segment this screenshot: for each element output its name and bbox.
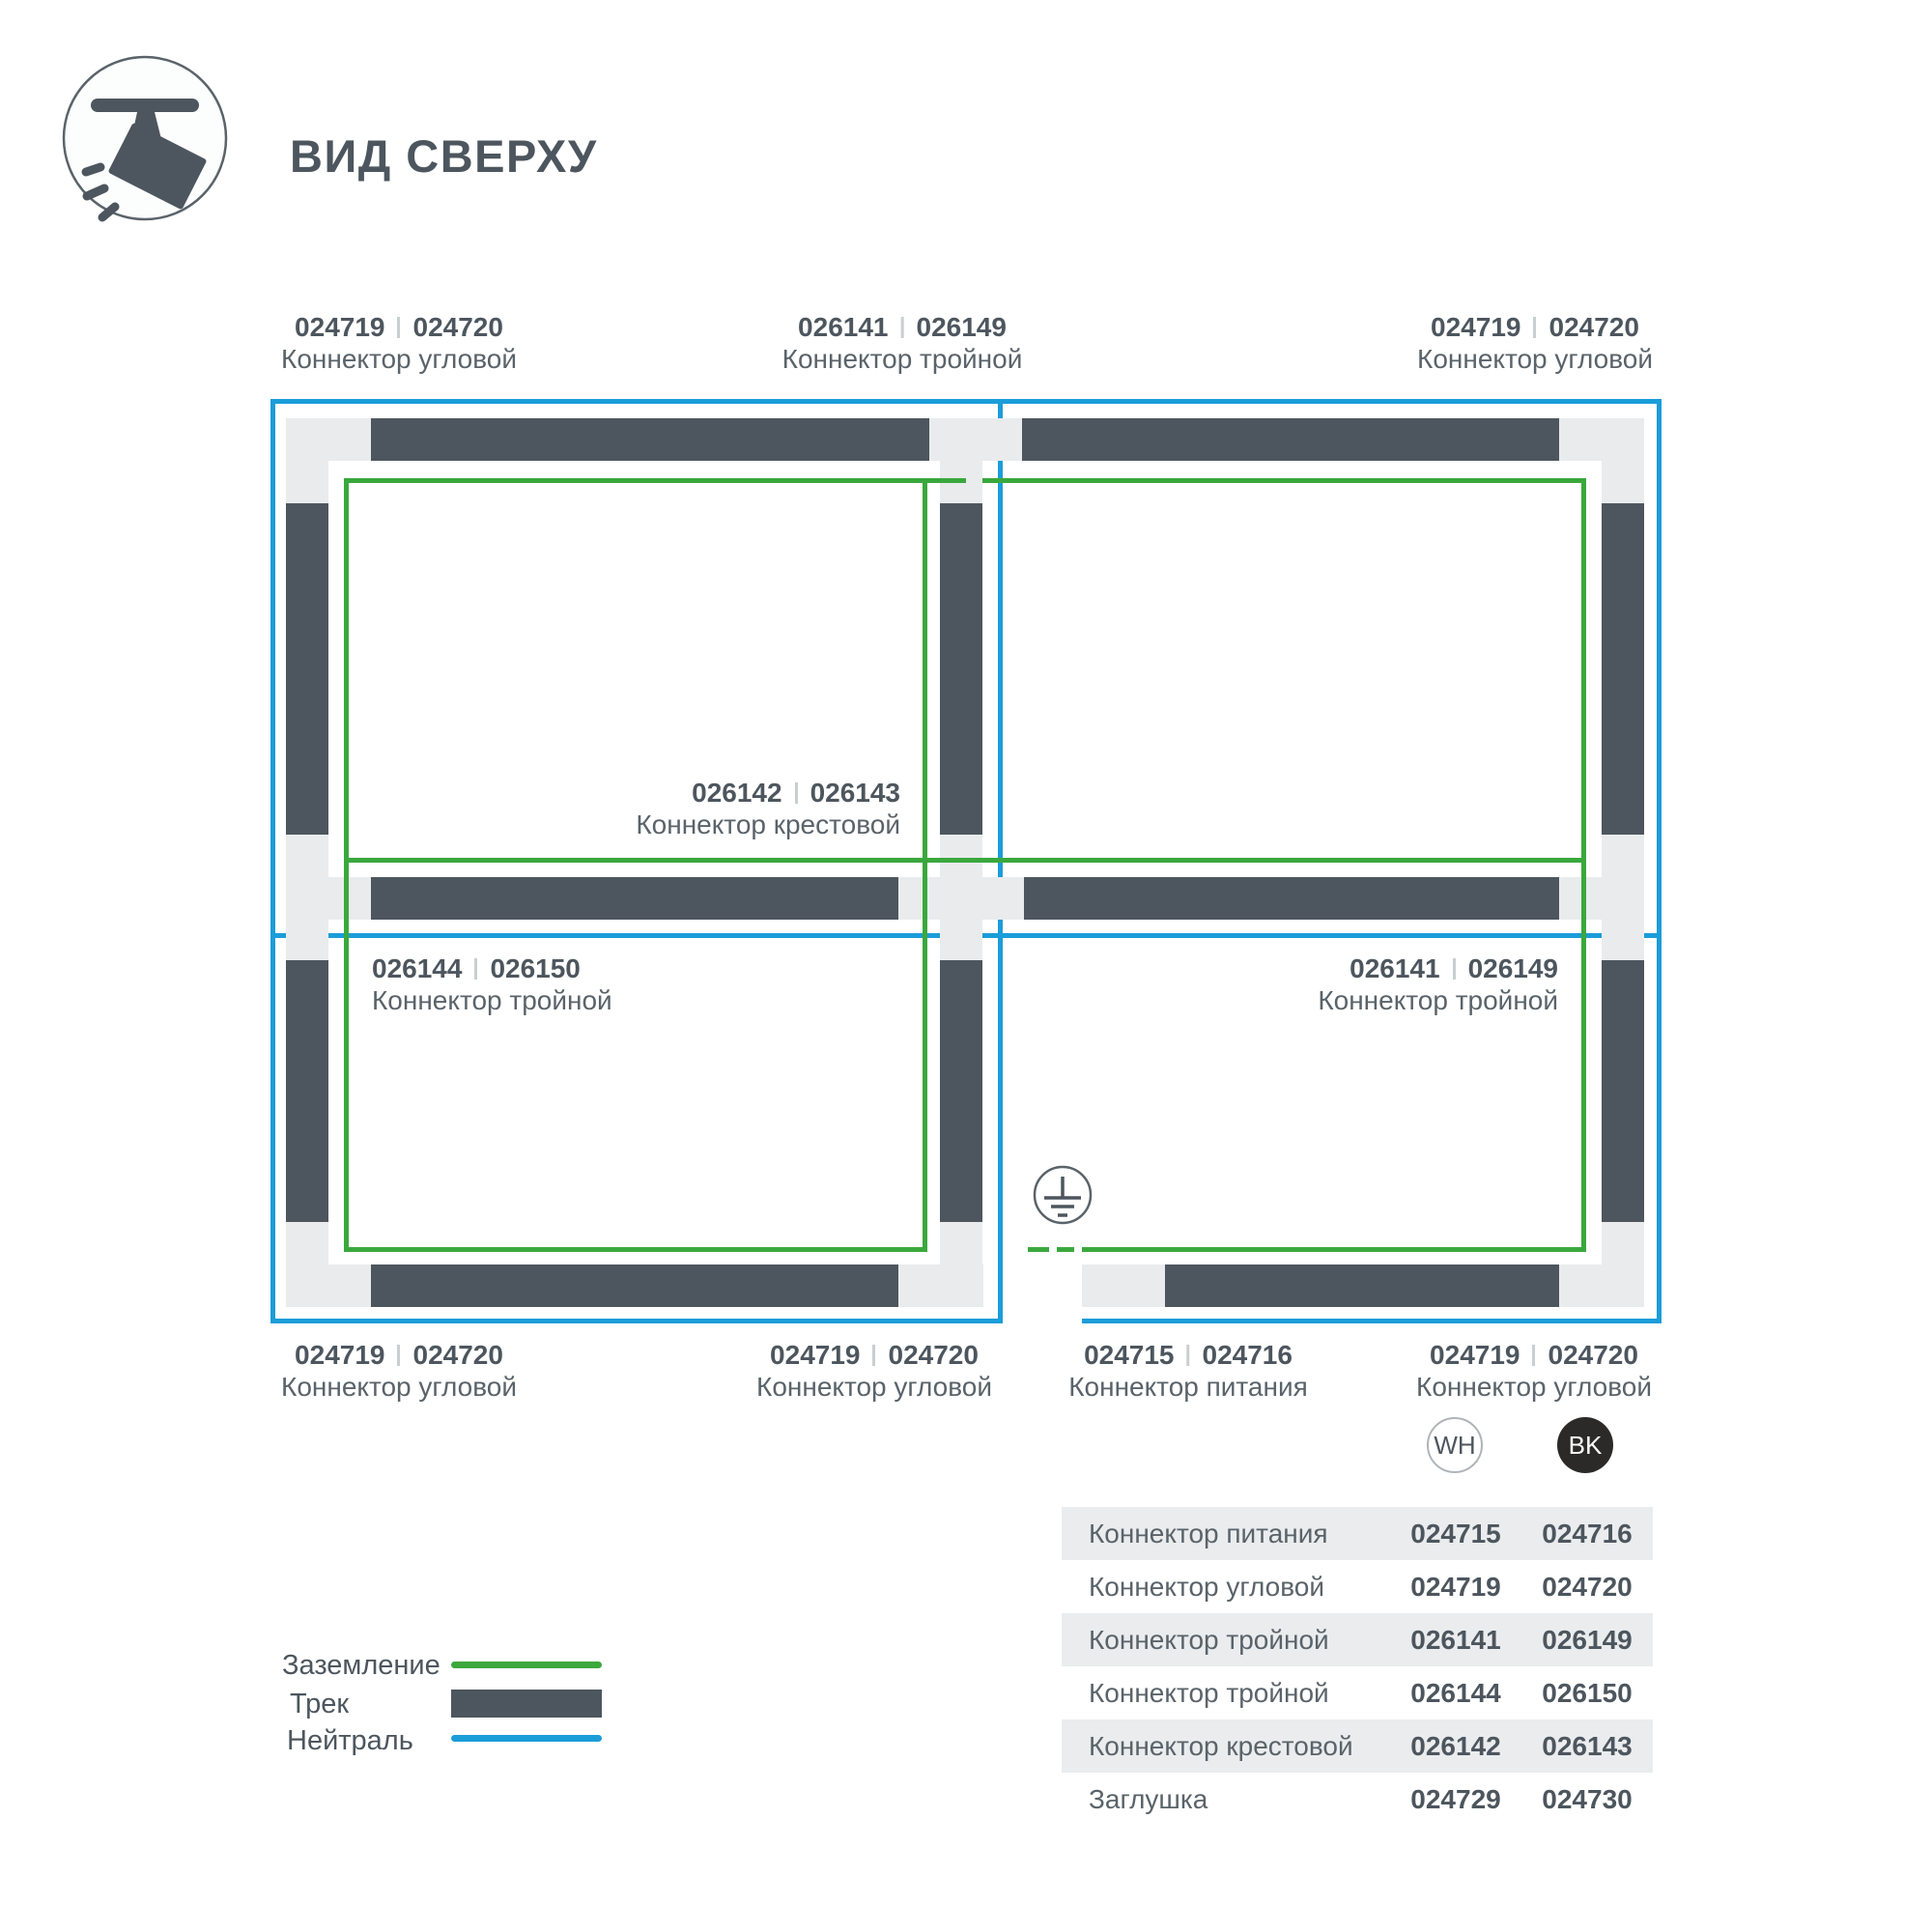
table-row: Коннектор тройной 026144 026150 xyxy=(1062,1666,1653,1719)
table-row: Коннектор крестовой 026142 026143 xyxy=(1062,1719,1653,1773)
neutral-line-right xyxy=(1657,399,1662,1323)
label-corner-bottom-right: 024719024720 Коннектор угловой xyxy=(1416,1341,1652,1402)
neutral-line-bottom-right xyxy=(1082,1319,1662,1323)
legend-ground-label: Заземление xyxy=(282,1650,440,1682)
track-spotlight-icon xyxy=(60,53,230,223)
divider xyxy=(1187,1345,1190,1366)
legend-track-label: Трек xyxy=(290,1689,349,1720)
label-corner-top-left: 024719024720 Коннектор угловой xyxy=(281,313,517,374)
legend-track-swatch xyxy=(451,1690,602,1718)
corner-connector-top-right xyxy=(1602,418,1644,503)
neutral-line-left xyxy=(270,399,275,1323)
ground-line-bottom-right xyxy=(1082,1247,1586,1252)
ground-line-middle-vertical xyxy=(923,478,927,1252)
parts-table: Коннектор питания 024715 024716 Коннекто… xyxy=(1062,1507,1653,1826)
triple-connector-left xyxy=(286,835,328,960)
divider xyxy=(1533,317,1536,338)
corner-connector-top-left xyxy=(286,418,328,503)
ground-line-top-left xyxy=(344,478,966,483)
label-power-connector: 024715024716 Коннектор питания xyxy=(1068,1341,1308,1402)
page: ВИД СВЕРХУ xyxy=(0,0,1932,1932)
cross-connector xyxy=(898,877,1024,920)
legend-neutral-swatch xyxy=(451,1735,602,1742)
divider xyxy=(872,1345,875,1366)
page-title: ВИД СВЕРХУ xyxy=(290,129,598,183)
divider xyxy=(397,317,400,338)
table-row: Коннектор угловой 024719 024720 xyxy=(1062,1560,1653,1613)
neutral-line-top xyxy=(270,399,1662,404)
ground-line-middle-horizontal xyxy=(344,858,1586,863)
badge-wh-label: WH xyxy=(1434,1431,1475,1461)
ground-line-top-right xyxy=(982,478,1586,483)
ground-symbol-icon xyxy=(1032,1164,1094,1226)
triple-connector-right xyxy=(1602,835,1644,960)
table-row: Заглушка 024729 024730 xyxy=(1062,1773,1653,1826)
ground-line-bottom-left xyxy=(344,1247,927,1252)
table-row: Коннектор питания 024715 024716 xyxy=(1062,1507,1653,1560)
divider xyxy=(1453,958,1456,980)
label-corner-bottom-middle: 024719024720 Коннектор угловой xyxy=(756,1341,992,1402)
corner-connector-bottom-middle xyxy=(940,1222,982,1307)
power-connector xyxy=(1082,1264,1165,1307)
label-cross-connector: 026142026143 Коннектор крестовой xyxy=(636,779,900,839)
divider xyxy=(1532,1345,1535,1366)
legend-neutral-label: Нейтраль xyxy=(287,1725,413,1757)
triple-connector-right xyxy=(1559,877,1602,920)
table-row: Коннектор тройной 026141 026149 xyxy=(1062,1613,1653,1666)
label-triple-right: 026141026149 Коннектор тройной xyxy=(1318,954,1558,1015)
triple-connector-top xyxy=(929,418,1022,461)
ground-dashed-line xyxy=(1028,1247,1049,1252)
neutral-line-bottom-left xyxy=(270,1319,1003,1323)
label-triple-left: 026144026150 Коннектор тройной xyxy=(372,954,612,1015)
color-badge-black: BK xyxy=(1557,1417,1613,1473)
label-triple-top: 026141026149 Коннектор тройной xyxy=(782,313,1023,374)
label-corner-top-right: 024719024720 Коннектор угловой xyxy=(1417,313,1653,374)
corner-connector-bottom-right xyxy=(1602,1222,1644,1307)
legend-ground-swatch xyxy=(451,1662,602,1668)
triple-connector-left xyxy=(328,877,371,920)
divider xyxy=(397,1345,400,1366)
divider xyxy=(474,958,477,980)
divider xyxy=(900,317,903,338)
color-badge-white: WH xyxy=(1427,1417,1483,1473)
divider xyxy=(795,782,798,804)
ground-line-left-vertical xyxy=(344,478,349,1252)
corner-connector-bottom-left xyxy=(286,1222,328,1307)
label-corner-bottom-left: 024719024720 Коннектор угловой xyxy=(281,1341,517,1402)
ground-line-right-vertical xyxy=(1581,478,1586,1252)
track-bar-bottom-left xyxy=(286,1264,982,1307)
badge-bk-label: BK xyxy=(1569,1431,1603,1461)
ground-dashed-line xyxy=(1057,1247,1074,1252)
